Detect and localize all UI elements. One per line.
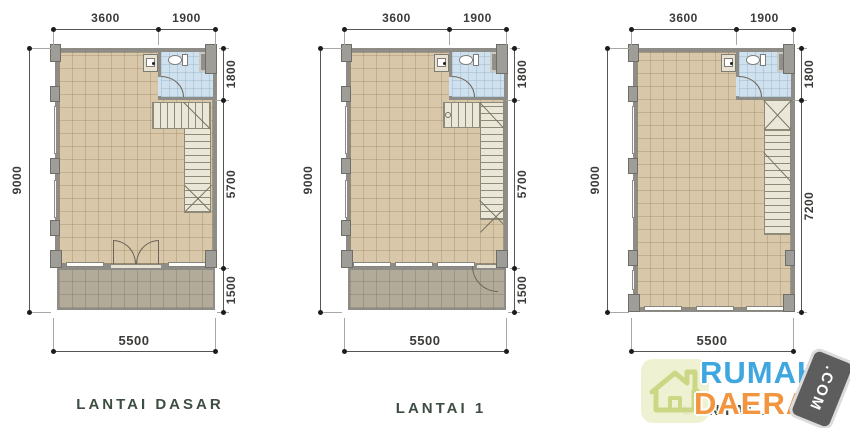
window xyxy=(644,306,682,311)
dim-label-9000: 9000 xyxy=(589,150,603,210)
pillar xyxy=(205,250,217,268)
window-glass xyxy=(632,106,635,154)
floor-label: LANTAI DASAR xyxy=(40,396,260,413)
window-glass xyxy=(345,180,348,218)
stair-main-flight xyxy=(480,102,504,220)
floor-plan-lantai-1: 3600 1900 9000 1800 5700 1500 5500 LANTA… xyxy=(291,0,574,428)
window-glass xyxy=(632,270,635,290)
window-glass xyxy=(54,106,57,154)
dim-line-bottom xyxy=(53,351,215,352)
stair-upper-flight xyxy=(152,102,211,129)
pillar xyxy=(50,158,60,174)
pillar xyxy=(496,44,508,74)
pillar xyxy=(50,250,62,268)
toilet-icon xyxy=(459,55,473,65)
dim-label-1800: 1800 xyxy=(803,44,817,104)
floor-plan-lantai-dasar: 3600 1900 9000 1800 5700 1500 5500 LANTA… xyxy=(0,0,283,428)
stair-lower-flight xyxy=(184,128,211,213)
pillar xyxy=(50,44,61,62)
dim-label-9000: 9000 xyxy=(302,150,316,210)
pillar xyxy=(785,250,795,266)
stair-newel-icon xyxy=(445,112,451,118)
terrace xyxy=(57,268,215,310)
window xyxy=(437,262,475,267)
toilet-icon xyxy=(168,55,182,65)
pillar xyxy=(205,44,217,74)
com-badge-label: .COM xyxy=(805,364,838,414)
pillar xyxy=(628,86,638,102)
dim-label-9000: 9000 xyxy=(11,150,25,210)
pillar xyxy=(341,250,353,268)
sink-drain-icon xyxy=(152,62,155,65)
dim-label-1500: 1500 xyxy=(516,260,530,320)
pillar xyxy=(50,220,60,236)
dim-line-top xyxy=(53,29,215,30)
dim-label-5500: 5500 xyxy=(631,334,793,347)
stair-main-flight xyxy=(764,130,791,235)
window-glass xyxy=(54,180,57,218)
floor-label: LANTAI 1 xyxy=(331,400,551,417)
window xyxy=(66,262,104,267)
pillar xyxy=(783,294,795,312)
sink-drain-icon xyxy=(443,62,446,65)
pillar xyxy=(628,158,638,174)
toilet-tank xyxy=(760,54,766,66)
floor-plan-sheet: 3600 1900 9000 1800 5700 1500 5500 LANTA… xyxy=(0,0,850,428)
dim-label-5700: 5700 xyxy=(225,154,239,214)
dim-label-1500: 1500 xyxy=(225,260,239,320)
window xyxy=(168,262,206,267)
dim-label-5500: 5500 xyxy=(344,334,506,347)
toilet-tank xyxy=(182,54,188,66)
dim-label-3600: 3600 xyxy=(344,12,449,24)
pillar xyxy=(341,220,351,236)
window xyxy=(696,306,734,311)
door-opening xyxy=(111,264,161,268)
pillar xyxy=(50,86,60,102)
dim-label-1900: 1900 xyxy=(736,12,793,24)
dim-line-left xyxy=(29,48,30,312)
dim-label-7200: 7200 xyxy=(803,176,817,236)
pillar xyxy=(341,158,351,174)
window-glass xyxy=(345,106,348,154)
pillar xyxy=(628,44,639,62)
pillar xyxy=(341,86,351,102)
dim-label-5700: 5700 xyxy=(516,154,530,214)
pillar xyxy=(496,250,508,268)
toilet-tank xyxy=(473,54,479,66)
dim-label-1900: 1900 xyxy=(449,12,506,24)
window-glass xyxy=(632,180,635,218)
toilet-icon xyxy=(746,55,760,65)
dim-label-3600: 3600 xyxy=(631,12,736,24)
window xyxy=(353,262,391,267)
pillar xyxy=(628,250,638,266)
watermark-logo: RUMAH DAERAH .COM xyxy=(636,352,850,428)
dim-label-1800: 1800 xyxy=(516,44,530,104)
sink-drain-icon xyxy=(730,62,733,65)
dim-label-1900: 1900 xyxy=(158,12,215,24)
window xyxy=(746,306,784,311)
dim-label-5500: 5500 xyxy=(53,334,215,347)
pillar xyxy=(628,294,640,312)
pillar xyxy=(783,44,795,74)
dim-label-3600: 3600 xyxy=(53,12,158,24)
dim-label-1800: 1800 xyxy=(225,44,239,104)
window xyxy=(395,262,433,267)
pillar xyxy=(341,44,352,62)
